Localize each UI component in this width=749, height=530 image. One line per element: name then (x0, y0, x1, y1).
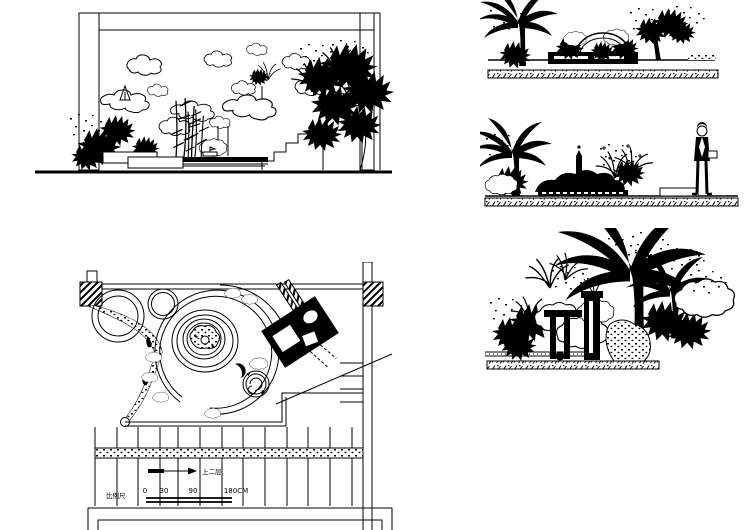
small-round-planter (148, 289, 178, 319)
cloud-motif (231, 81, 255, 95)
stair-direction-note: 上二层 (202, 467, 222, 476)
section-sketch-3 (480, 228, 749, 378)
cloud-motif (282, 53, 310, 69)
section-sketch-1 (480, 0, 749, 95)
cloud-motif (204, 51, 232, 67)
boulders (535, 300, 614, 349)
head (697, 126, 707, 136)
bottom-wall (88, 508, 392, 530)
cloud-motif (222, 95, 276, 120)
scale-tick: 30 (160, 487, 169, 495)
stepping-stone (153, 392, 169, 402)
legs (697, 161, 707, 194)
cloud-rockery-motifs (100, 43, 326, 135)
gravel-strip (688, 55, 716, 60)
sprig-tree (523, 254, 572, 292)
small-boat (203, 152, 217, 156)
cloud-motif (147, 84, 168, 96)
palm-tree (480, 0, 558, 68)
stepping-stone (225, 288, 241, 298)
round-tree (630, 6, 705, 60)
stepping-stone (249, 358, 267, 370)
cad-drawing-sheet: 上二层 比例尺 0 30 90 180CM (0, 0, 749, 530)
scale-tick: 0 (143, 487, 147, 495)
cloud-motif (127, 55, 162, 75)
direction-arrow: 上二层 (148, 467, 222, 476)
circular-path (142, 285, 290, 418)
ground-base (487, 361, 659, 369)
scale-bar-lines (146, 498, 232, 502)
wall-stub (87, 271, 97, 282)
plan-drawing: 上二层 比例尺 0 30 90 180CM (60, 262, 400, 530)
cloud-motif (246, 43, 267, 55)
stone-sphere (556, 352, 565, 361)
stepping-stone (242, 294, 258, 304)
scale-bar: 比例尺 0 30 90 180CM (106, 487, 248, 502)
curved-border (88, 306, 162, 427)
pine-canopy (249, 69, 269, 86)
scale-tick: 180CM (224, 487, 248, 495)
ground-base (485, 198, 738, 206)
scale-label: 比例尺 (106, 491, 126, 500)
ground-base (488, 70, 718, 78)
crescent-planter (235, 363, 246, 378)
stone-lantern (576, 145, 582, 182)
stepping-stone (142, 372, 158, 382)
section-sketch-2 (480, 112, 749, 217)
stone-platforms (103, 152, 183, 168)
planters (92, 289, 178, 342)
stepping-stone (146, 352, 162, 362)
landing-band (95, 448, 363, 458)
central-pond (172, 310, 238, 372)
hatched-column (363, 282, 383, 306)
wall-stub (363, 262, 372, 282)
arrowhead (188, 468, 197, 475)
ramp-treads (340, 363, 363, 402)
held-item (708, 151, 717, 158)
right-wall (363, 306, 372, 530)
scale-tick: 90 (189, 487, 198, 495)
stepping-stone (205, 408, 221, 418)
plants (70, 62, 281, 170)
human-figure (692, 122, 717, 194)
hatched-column (80, 282, 102, 306)
elevation-drawing (0, 0, 400, 185)
